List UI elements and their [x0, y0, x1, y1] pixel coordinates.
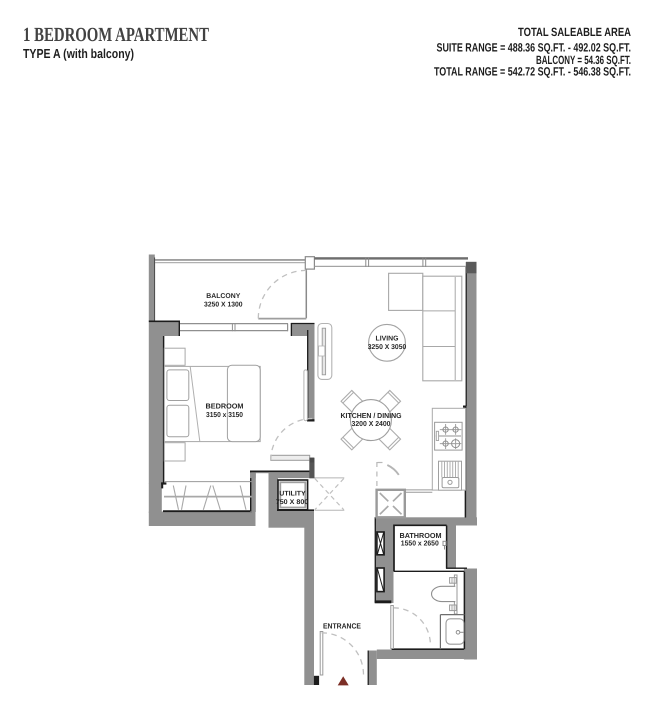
svg-text:UTILITY: UTILITY [279, 491, 306, 498]
svg-text:TOTAL RANGE = 542.72 SQ.FT. -: TOTAL RANGE = 542.72 SQ.FT. - 546.38 SQ.… [434, 65, 631, 79]
svg-text:3250 X 3050: 3250 X 3050 [368, 344, 407, 351]
svg-text:3150 x 3150: 3150 x 3150 [206, 410, 243, 419]
svg-text:1550 x 2650: 1550 x 2650 [401, 539, 439, 548]
svg-text:LIVING: LIVING [376, 335, 400, 342]
svg-text:ENTRANCE: ENTRANCE [323, 622, 361, 631]
svg-text:750 X 800: 750 X 800 [276, 499, 309, 506]
svg-text:3200 X 2400: 3200 X 2400 [352, 419, 391, 428]
svg-text:BALCONY: BALCONY [206, 293, 240, 300]
svg-text:3250 X 1300: 3250 X 1300 [204, 302, 243, 309]
svg-text:1 BEDROOM APARTMENT: 1 BEDROOM APARTMENT [23, 24, 209, 46]
svg-text:TYPE A (with balcony): TYPE A (with balcony) [23, 46, 134, 61]
svg-text:TOTAL SALEABLE AREA: TOTAL SALEABLE AREA [518, 25, 631, 39]
